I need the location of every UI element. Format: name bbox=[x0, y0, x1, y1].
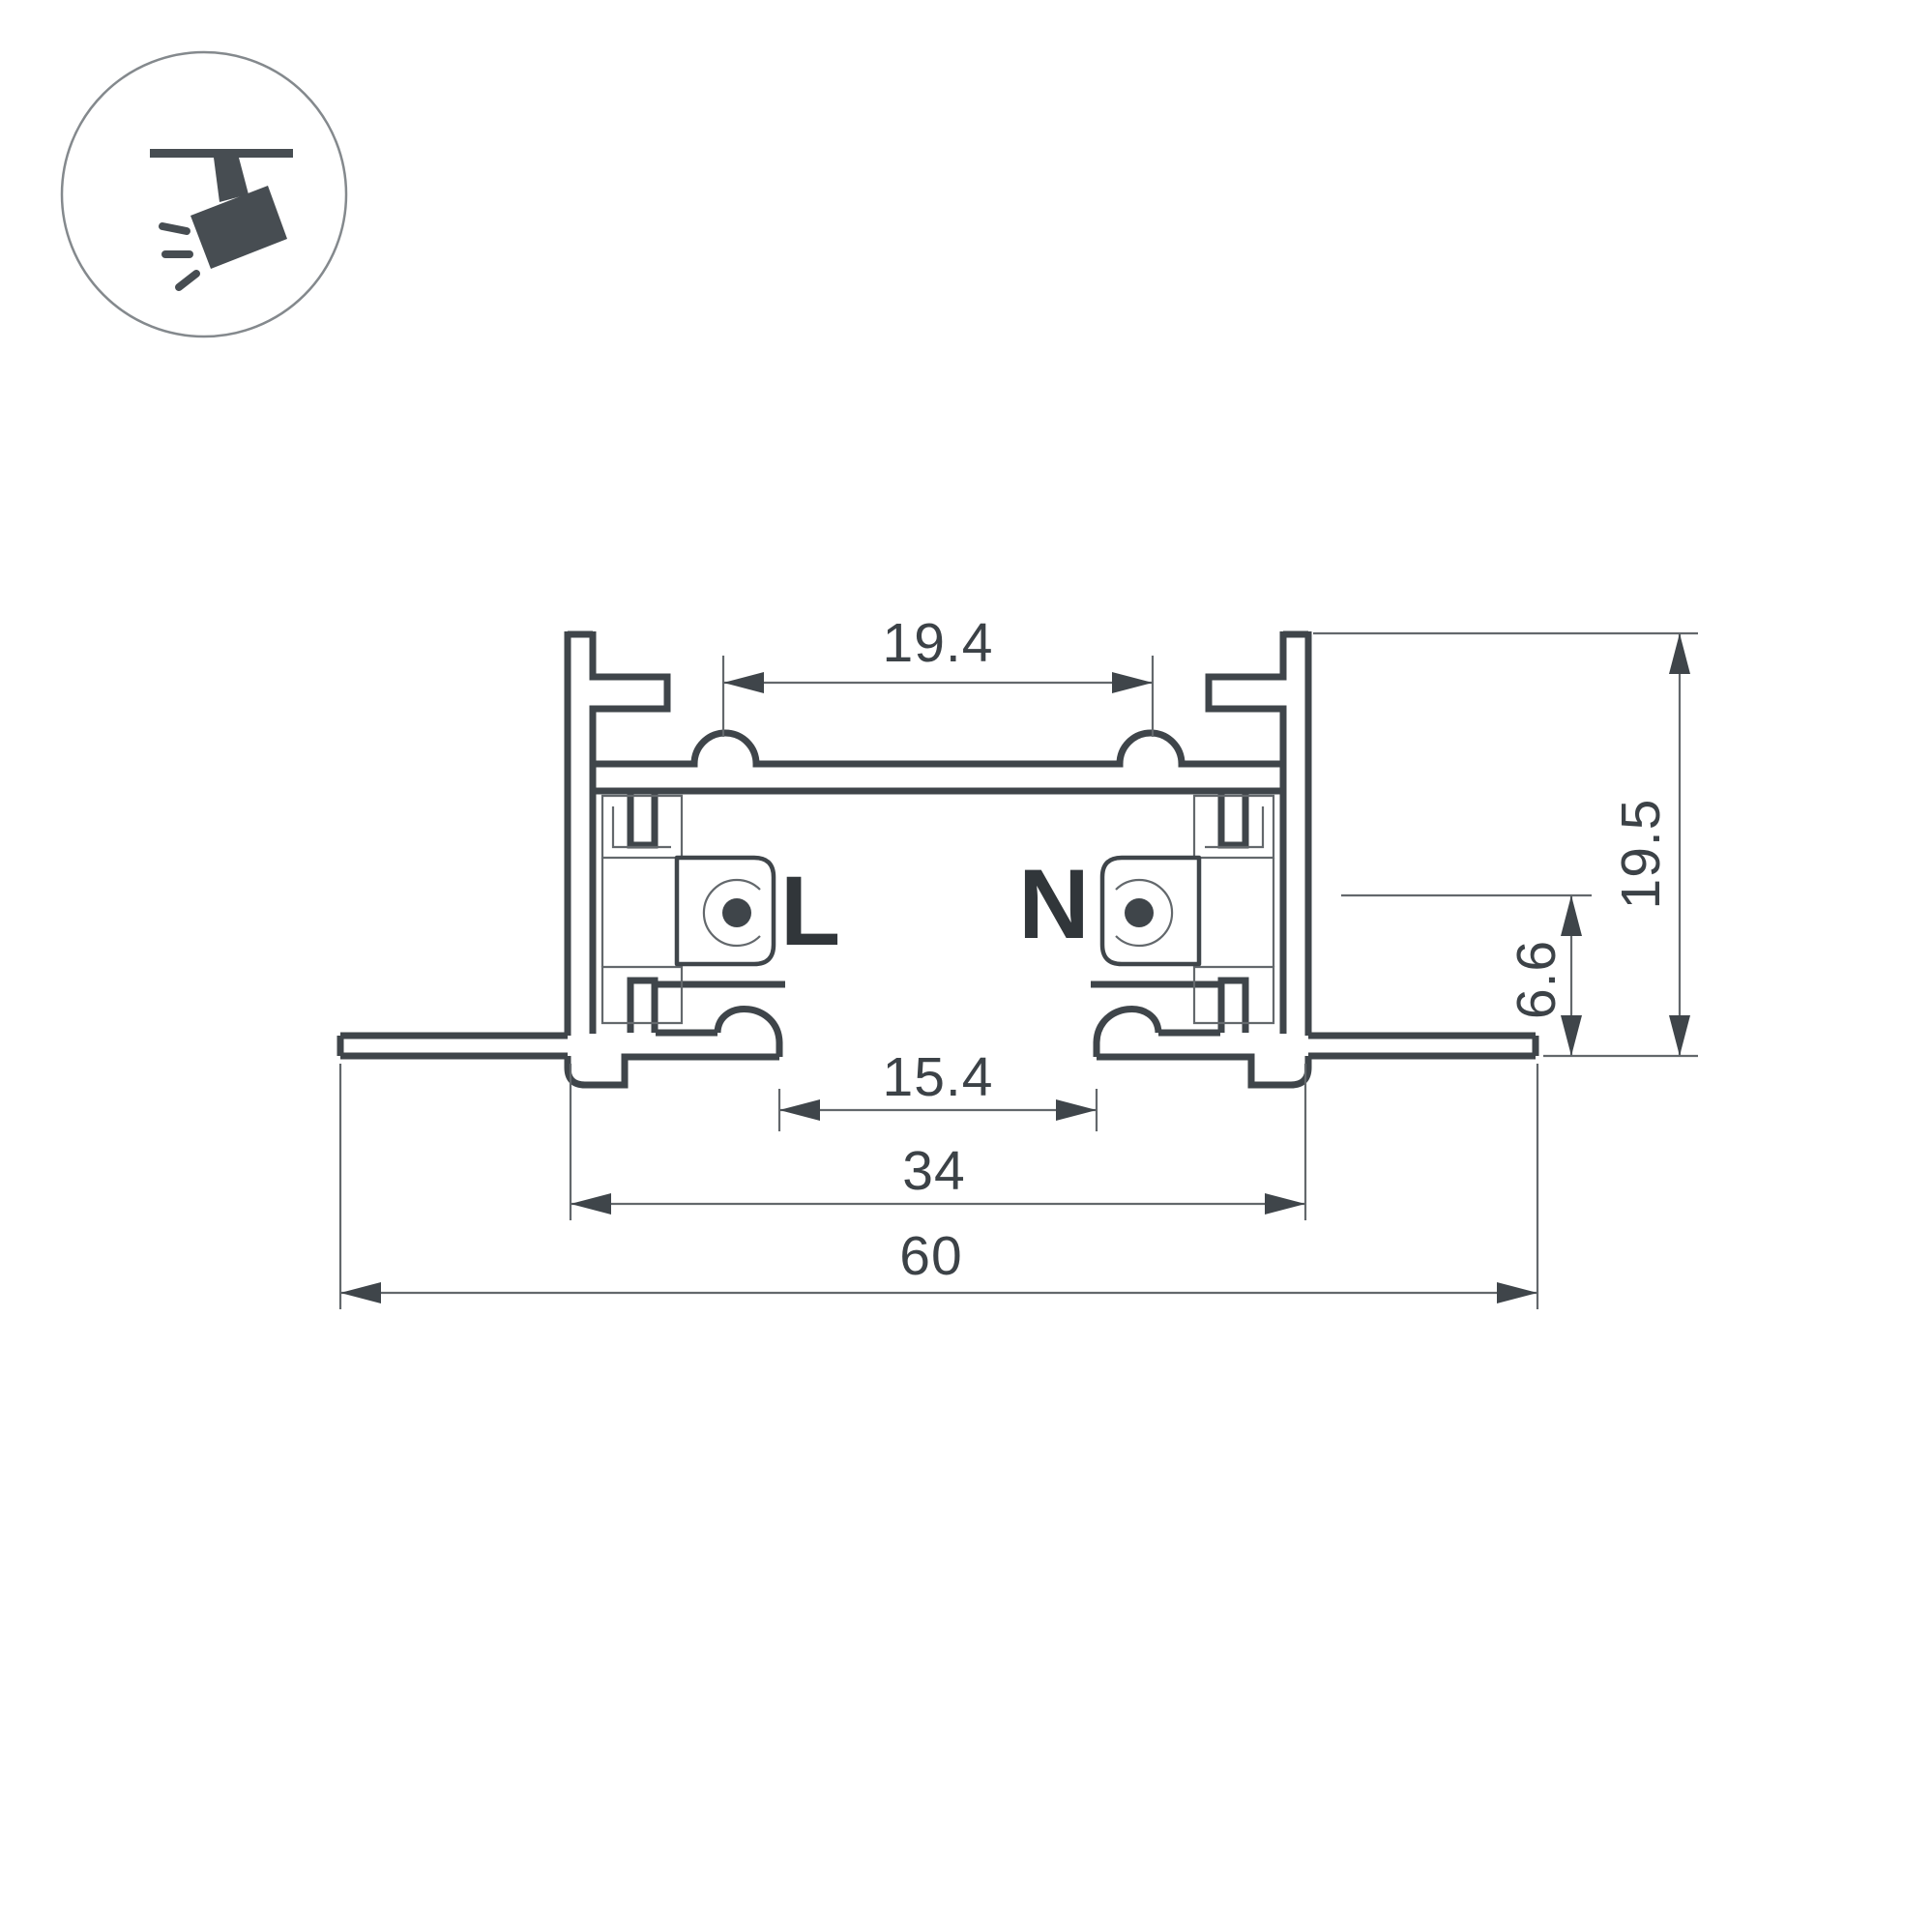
neutral-label: N bbox=[1018, 849, 1090, 959]
arrowhead-right bbox=[1112, 672, 1153, 693]
left-insulator-lower bbox=[602, 967, 682, 1023]
right-insulator-lower bbox=[1194, 967, 1273, 1023]
left-insulator-detail bbox=[613, 806, 671, 847]
profile-cross-section bbox=[340, 631, 1536, 1085]
track-spotlight-icon bbox=[62, 52, 346, 337]
dim-label-overall-width: 60 bbox=[899, 1225, 962, 1287]
right-insulator-detail bbox=[1205, 806, 1263, 847]
inner-top-right-with-bump bbox=[938, 733, 1283, 764]
dimension-contact-height: 6.6 bbox=[1341, 895, 1592, 1056]
arrowhead-top bbox=[1669, 633, 1690, 674]
live-contact-dot bbox=[722, 898, 751, 927]
arrowhead-right bbox=[1056, 1099, 1097, 1121]
arrowhead-right bbox=[1497, 1282, 1537, 1303]
conductor-clips: L N bbox=[677, 849, 1199, 966]
right-upper-tab bbox=[1221, 791, 1245, 845]
dim-label-overall-height: 19.5 bbox=[1610, 799, 1672, 910]
dim-label-top-slot: 19.4 bbox=[883, 612, 994, 674]
arrowhead-right bbox=[1265, 1193, 1305, 1215]
right-bottom-lip bbox=[1097, 1056, 1308, 1085]
dim-label-body-width: 34 bbox=[902, 1140, 965, 1202]
left-lower-tab bbox=[630, 981, 655, 1033]
icon-ceiling-bar bbox=[150, 149, 293, 158]
live-label: L bbox=[780, 856, 840, 966]
left-upper-tab bbox=[630, 791, 655, 845]
dim-label-contact-height: 6.6 bbox=[1506, 940, 1567, 1019]
neutral-contact-dot bbox=[1125, 898, 1154, 927]
arrowhead-bottom bbox=[1561, 1015, 1582, 1056]
icon-circle-border bbox=[62, 52, 346, 337]
dimension-top-slot: 19.4 bbox=[723, 612, 1153, 737]
left-bottom-lip bbox=[568, 1056, 779, 1085]
arrowhead-left bbox=[723, 672, 764, 693]
right-lower-tab bbox=[1221, 981, 1245, 1033]
dim-label-bottom-opening: 15.4 bbox=[883, 1046, 994, 1108]
left-foot-dome bbox=[717, 1010, 779, 1057]
icon-light-ray bbox=[162, 226, 187, 231]
dimension-bottom-opening: 15.4 bbox=[779, 1046, 1097, 1131]
arrowhead-left bbox=[571, 1193, 611, 1215]
arrowhead-left bbox=[779, 1099, 820, 1121]
drawing-page: L N 19.4 19.5 6.6 15.4 bbox=[0, 0, 1932, 1932]
inner-top-left-with-bump bbox=[593, 733, 938, 764]
track-profile-technical-drawing: L N 19.4 19.5 6.6 15.4 bbox=[0, 0, 1932, 1932]
arrowhead-left bbox=[340, 1282, 381, 1303]
arrowhead-bottom bbox=[1669, 1015, 1690, 1056]
right-foot-dome bbox=[1097, 1010, 1158, 1057]
arrowhead-top bbox=[1561, 895, 1582, 936]
